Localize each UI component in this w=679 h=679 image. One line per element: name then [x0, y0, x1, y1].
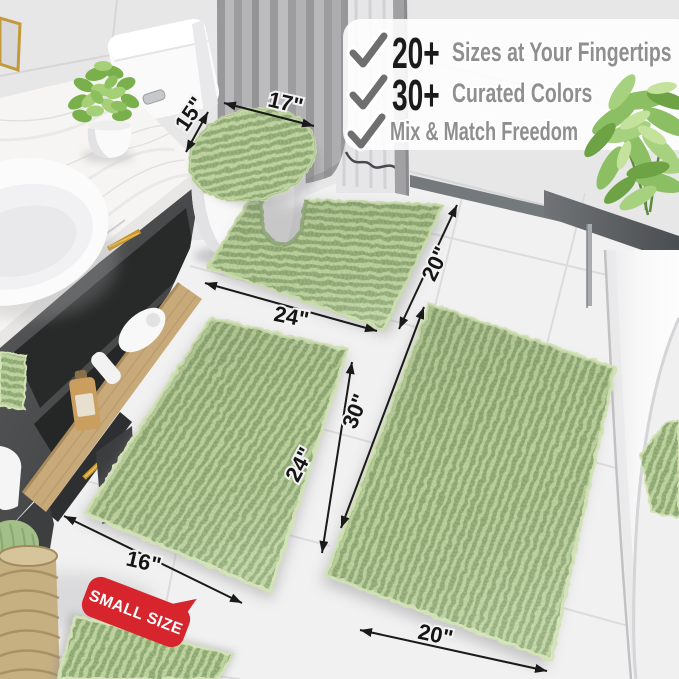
- svg-text:Curated Colors: Curated Colors: [452, 78, 592, 108]
- svg-text:Mix & Match Freedom: Mix & Match Freedom: [390, 117, 578, 146]
- svg-text:Sizes at Your Fingertips: Sizes at Your Fingertips: [452, 37, 672, 67]
- svg-text:30+: 30+: [392, 71, 440, 120]
